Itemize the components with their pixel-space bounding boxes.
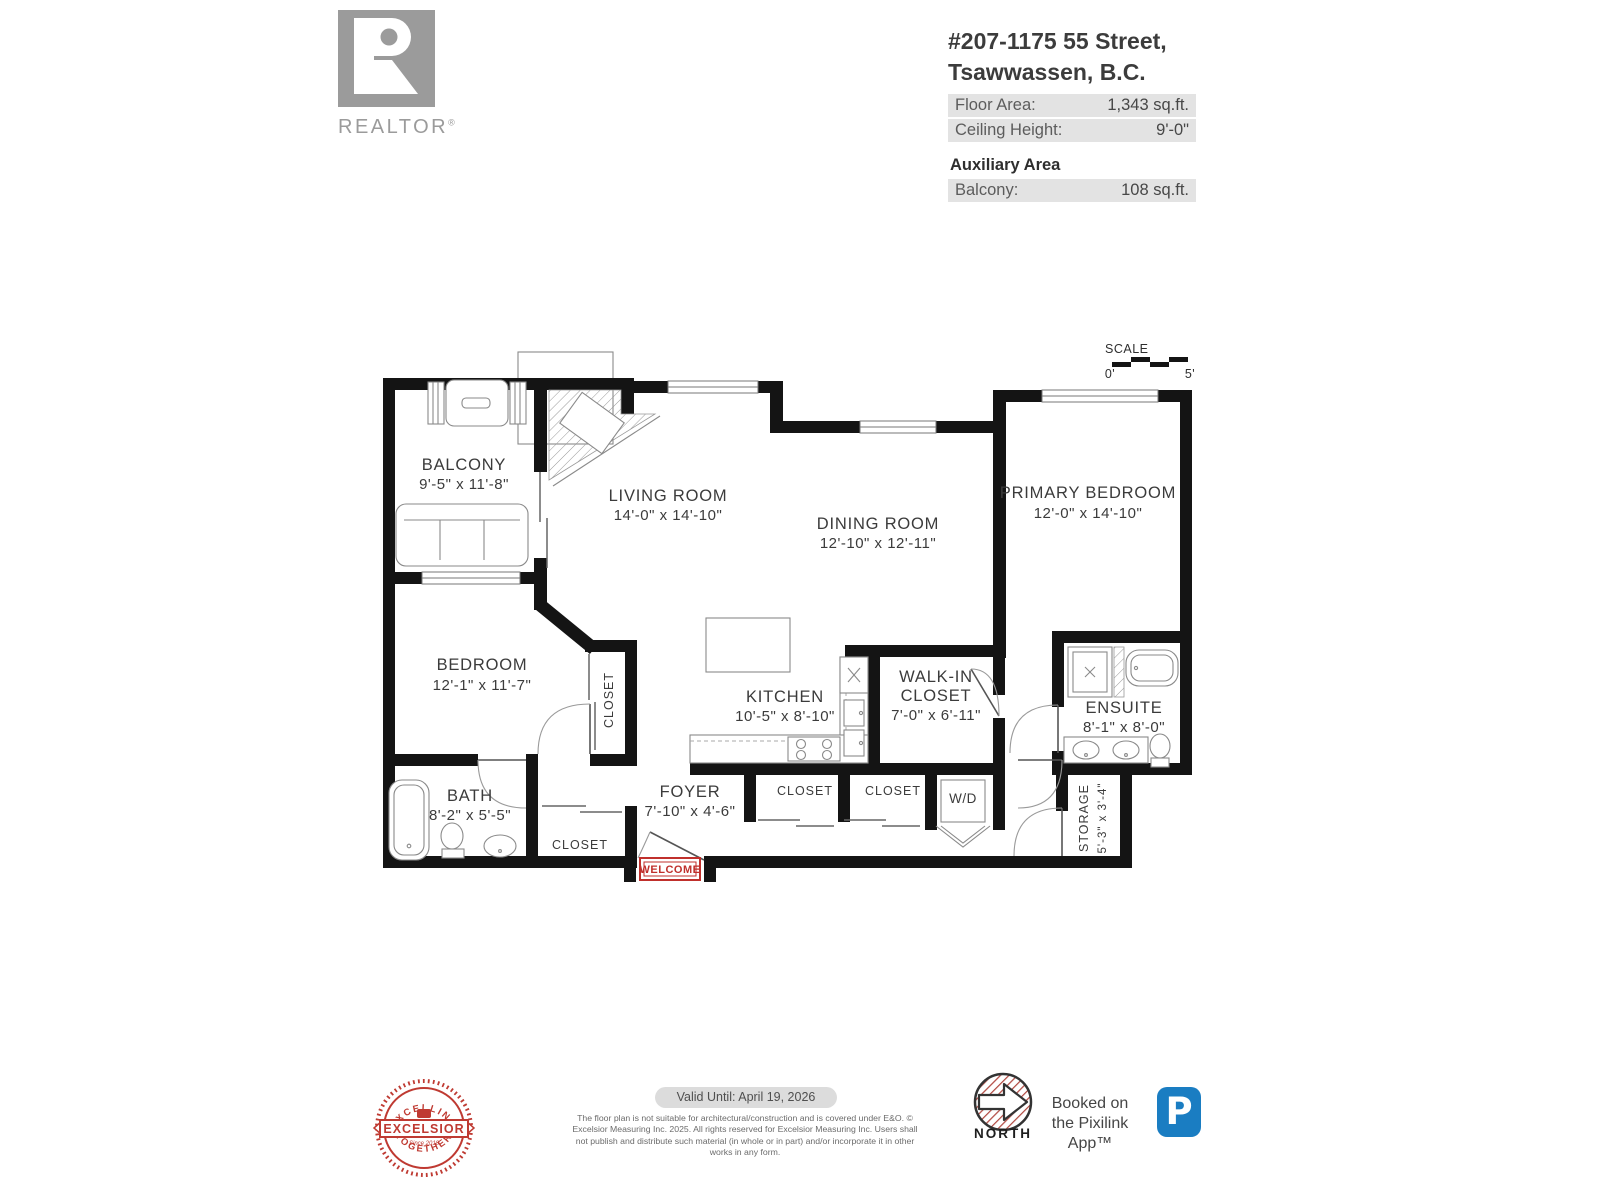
floor-plan-drawing: SCALE 0' 5' <box>0 0 1600 1200</box>
living-room-window <box>668 381 758 393</box>
pixilink-app-icon: P <box>1157 1087 1201 1137</box>
badge-since-text: Since 2018 <box>409 1141 440 1147</box>
bath-sink <box>484 835 516 857</box>
kitchen-dims: 10'-5" x 8'-10" <box>735 708 835 725</box>
hall-closet-slider <box>542 806 622 812</box>
north-compass-icon <box>971 1070 1035 1134</box>
foyer-closet-b-slider <box>844 820 920 826</box>
bath-label: BATH <box>447 787 493 805</box>
ensuite-vanity <box>1064 737 1148 763</box>
living-room-label: LIVING ROOM <box>609 487 728 505</box>
balcony-sofa <box>396 504 528 566</box>
kitchen-label: KITCHEN <box>746 688 824 706</box>
balcony-bbq <box>428 380 526 426</box>
dining-room-label: DINING ROOM <box>817 515 939 533</box>
dining-room-dims: 12'-10" x 12'-11" <box>820 535 936 552</box>
valid-until-badge: Valid Until: April 19, 2026 <box>655 1087 837 1108</box>
walkin-label-1: WALK-IN <box>899 668 973 686</box>
ensuite-shower <box>1068 647 1124 697</box>
excelsior-badge: EXCELLING TOGETHER EXCELSIOR Since 2018 <box>372 1076 476 1180</box>
welcome-text: WELCOME <box>640 864 701 876</box>
floor-plan-page: REALTOR® #207-1175 55 Street, Tsawwassen… <box>0 0 1600 1200</box>
badge-truck-icon <box>417 1109 431 1118</box>
primary-bedroom-dims: 12'-0" x 14'-10" <box>1034 505 1143 522</box>
bedroom-label: BEDROOM <box>437 656 528 674</box>
storage-label: STORAGE <box>1077 784 1091 852</box>
bedroom-dims: 12'-1" x 11'-7" <box>433 677 532 694</box>
booked-line-2: the Pixilink App™ <box>1033 1114 1147 1154</box>
ensuite-bathtub <box>1126 650 1178 686</box>
bedroom-door <box>538 704 590 754</box>
foyer-dims: 7'-10" x 4'-6" <box>645 803 736 820</box>
badge-middle-text: EXCELSIOR <box>383 1122 464 1136</box>
foyer-closet-b-label: CLOSET <box>865 784 921 798</box>
foyer-closet-a-label: CLOSET <box>777 784 833 798</box>
scale-bar: SCALE 0' 5' <box>1105 342 1195 381</box>
walkin-label-2: CLOSET <box>901 687 972 705</box>
foyer-closet-a-slider <box>758 820 834 826</box>
fireplace <box>549 390 660 486</box>
pixilink-credit: Booked on the Pixilink App™ <box>1033 1094 1147 1154</box>
bedroom-window <box>422 572 520 584</box>
bath-dims: 8'-2" x 5'-5" <box>429 807 511 824</box>
scale-title: SCALE <box>1105 342 1149 356</box>
bedroom-closet-label: CLOSET <box>602 672 616 728</box>
welcome-mat: WELCOME <box>640 858 701 880</box>
foyer-label: FOYER <box>660 783 721 801</box>
kitchen-island <box>706 618 790 672</box>
stove <box>788 737 840 761</box>
scale-five: 5' <box>1185 367 1195 381</box>
balcony-dims: 9'-5" x 11'-8" <box>419 476 509 493</box>
fridge <box>840 657 868 693</box>
scale-zero: 0' <box>1105 367 1115 381</box>
storage-dims: 5'-3" x 3'-4" <box>1097 783 1109 854</box>
ensuite-toilet <box>1150 734 1170 767</box>
hall-closet-label: CLOSET <box>552 838 608 852</box>
bath-toilet <box>441 823 464 858</box>
storage-door <box>1014 808 1062 856</box>
dining-room-window <box>860 421 936 433</box>
ensuite-dims: 8'-1" x 8'-0" <box>1083 719 1165 736</box>
balcony-slider-door <box>540 472 547 568</box>
walkin-dims: 7'-0" x 6'-11" <box>891 707 981 724</box>
booked-line-1: Booked on <box>1033 1094 1147 1114</box>
ensuite-label: ENSUITE <box>1085 699 1162 717</box>
disclaimer-text: The floor plan is not suitable for archi… <box>569 1113 921 1159</box>
ensuite-door <box>1010 705 1058 753</box>
entry-door <box>638 832 704 860</box>
bath-bathtub <box>389 780 429 860</box>
primary-bedroom-label: PRIMARY BEDROOM <box>1000 484 1176 502</box>
balcony-label: BALCONY <box>422 456 506 474</box>
wd-label: W/D <box>949 791 977 806</box>
primary-bedroom-window <box>1042 390 1158 402</box>
living-room-dims: 14'-0" x 14'-10" <box>614 507 723 524</box>
